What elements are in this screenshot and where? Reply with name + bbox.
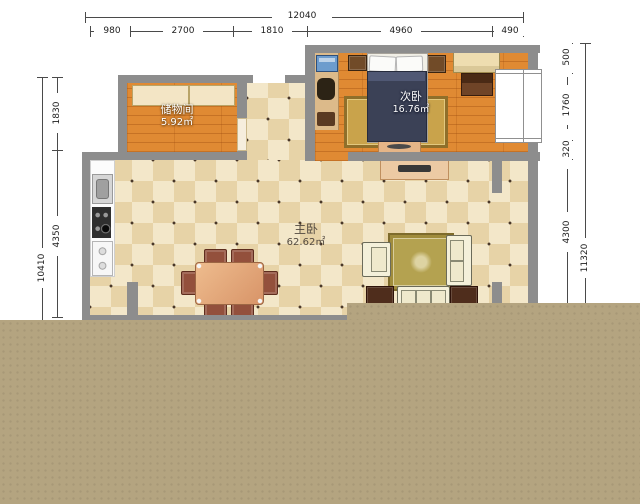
- desk-item: [317, 112, 335, 126]
- dim-right-segment-label: 4300: [562, 212, 572, 252]
- dim-tick: [580, 43, 591, 44]
- dim-left-segment-label: 4350: [52, 216, 62, 256]
- tile-floor-hallway: [247, 77, 305, 160]
- wall: [492, 161, 502, 193]
- wall: [118, 75, 127, 160]
- room-area: 62.62㎡: [276, 237, 336, 250]
- dim-right-total-label: 11320: [580, 238, 590, 278]
- wall: [127, 282, 138, 317]
- dining-table: [195, 262, 264, 305]
- storage-door: [237, 118, 247, 151]
- tv: [398, 165, 431, 172]
- pillow: [396, 56, 424, 73]
- room-label-main: 主卧 62.62㎡: [276, 222, 336, 250]
- dim-top-segment-label: 2700: [163, 26, 203, 36]
- room-area: 5.92㎡: [142, 117, 212, 130]
- dim-top-total-label: 12040: [272, 11, 332, 21]
- speaker-oval: [387, 144, 411, 149]
- wall: [118, 75, 253, 83]
- dim-tick: [52, 150, 63, 151]
- room-area: 16.76㎡: [380, 104, 442, 116]
- dim-tick: [52, 77, 63, 78]
- bedroom-door-opening: [315, 152, 348, 161]
- dim-tick: [307, 26, 308, 37]
- nightstand: [348, 55, 367, 71]
- sofa: [446, 235, 472, 286]
- room-name: 次卧: [380, 90, 442, 104]
- living-rug: [388, 233, 454, 291]
- dim-top-segment-label: 490: [494, 26, 526, 36]
- dim-right-segment-label: 320: [562, 129, 572, 169]
- wall: [305, 45, 540, 53]
- dim-top-segment-label: 1810: [252, 26, 292, 36]
- dim-tick: [90, 26, 91, 37]
- bench: [461, 73, 493, 96]
- bay-window: [495, 69, 542, 143]
- dim-top-segment-label: 980: [94, 26, 130, 36]
- dim-tick: [233, 26, 234, 37]
- washer: [92, 241, 113, 276]
- tan-overlay-lower: [0, 320, 640, 504]
- sink: [92, 174, 113, 204]
- wall: [492, 282, 502, 303]
- room-name: 储物间: [142, 103, 212, 117]
- wall: [285, 75, 307, 83]
- sofa-cushion: [450, 240, 464, 261]
- desk-chair: [317, 78, 335, 100]
- armchair-cushion: [371, 247, 387, 272]
- dim-tick: [492, 26, 493, 37]
- wall: [82, 152, 247, 160]
- dim-tick: [37, 77, 48, 78]
- stove: [92, 207, 111, 238]
- wall: [82, 152, 90, 321]
- dim-tick: [85, 12, 86, 23]
- dresser: [453, 52, 500, 73]
- sofa-cushion: [450, 261, 464, 282]
- tv-cabinet: [380, 160, 449, 180]
- dim-tick: [130, 26, 131, 37]
- dim-left-total-label: 10410: [37, 248, 47, 288]
- armchair: [362, 242, 391, 277]
- nightstand: [427, 55, 446, 73]
- dim-right-segment-label: 1760: [562, 85, 572, 125]
- dim-tick: [523, 12, 524, 23]
- room-name: 主卧: [276, 222, 336, 237]
- room-label-bedroom: 次卧 16.76㎡: [380, 90, 442, 116]
- room-label-storage: 储物间 5.92㎡: [142, 103, 212, 129]
- entrance-opening: [253, 75, 285, 83]
- dim-right-segment-label: 500: [562, 37, 572, 77]
- dim-left-segment-label: 1830: [52, 93, 62, 133]
- wall: [305, 45, 315, 161]
- duvet-fold: [368, 72, 425, 81]
- wall: [348, 152, 540, 161]
- dim-top-segment-label: 4960: [381, 26, 421, 36]
- computer: [316, 55, 338, 72]
- dim-right-inner-line: [567, 43, 568, 303]
- dim-tick: [52, 317, 63, 318]
- floor-plan-canvas: 12040 980 2700 1810 4960 490 10410 1830 …: [0, 0, 640, 504]
- wall: [528, 138, 538, 303]
